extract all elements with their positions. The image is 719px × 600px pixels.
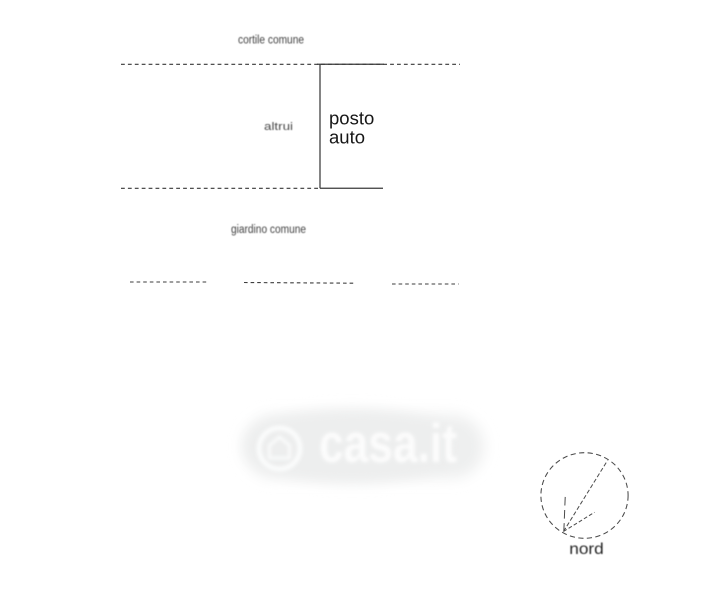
svg-text:auto: auto	[329, 127, 365, 148]
svg-text:giardino comune: giardino comune	[231, 224, 306, 236]
svg-text:cortile comune: cortile comune	[238, 35, 304, 47]
svg-text:nord: nord	[569, 541, 604, 558]
svg-text:casa.it: casa.it	[319, 412, 457, 474]
svg-text:altrui: altrui	[264, 121, 293, 133]
svg-text:posto: posto	[329, 108, 374, 129]
